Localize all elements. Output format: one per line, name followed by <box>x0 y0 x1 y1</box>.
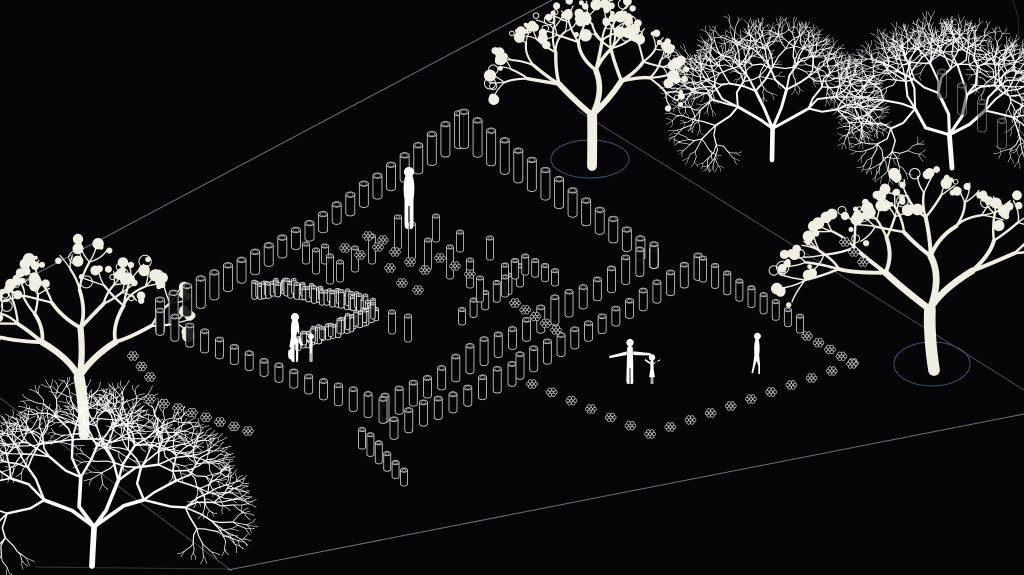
blossom <box>553 2 560 9</box>
blossom <box>574 32 579 37</box>
blossom <box>498 66 503 71</box>
bare-tree-branches <box>44 477 144 527</box>
fruit-tree-branches <box>559 70 621 115</box>
bare-tree-branches <box>772 128 773 160</box>
blossom <box>492 47 499 54</box>
blossom <box>948 177 953 182</box>
fruit-tree-branches <box>42 328 115 378</box>
site-axonometric-illustration <box>0 0 1024 575</box>
blossom <box>528 21 537 30</box>
blossom <box>496 60 501 65</box>
blossom <box>39 262 45 268</box>
blossom <box>786 302 791 307</box>
blossom <box>575 16 581 22</box>
bare-tree-branches <box>915 93 985 135</box>
blossom <box>566 0 573 5</box>
bare-tree-branches <box>738 90 809 129</box>
post-row-hook-row <box>359 427 408 486</box>
boundary-line <box>228 414 1024 570</box>
blossom <box>105 266 112 273</box>
blossom <box>1005 202 1014 211</box>
scatter-posts <box>303 214 509 342</box>
blossom <box>579 29 591 41</box>
blossom <box>651 31 655 35</box>
blossom <box>106 248 112 254</box>
blossom <box>579 0 584 5</box>
bare-tree <box>827 11 1024 185</box>
blossom <box>779 287 786 294</box>
blossom <box>910 169 920 179</box>
blossom <box>964 183 971 190</box>
person-arms-out-child <box>645 354 660 384</box>
blossom <box>655 31 659 35</box>
blossom <box>892 190 898 196</box>
blossom <box>664 43 675 54</box>
blossom <box>90 266 100 276</box>
blossom <box>118 257 129 268</box>
blossom <box>807 268 817 278</box>
blossom <box>72 256 83 267</box>
blossom <box>899 196 905 202</box>
blossom <box>923 170 932 179</box>
dense-post-band <box>252 278 379 350</box>
planting-row <box>145 395 254 436</box>
fruit-tree-branches <box>930 310 934 371</box>
blossom <box>879 200 890 211</box>
fruit-tree <box>484 0 689 166</box>
blossom <box>1015 202 1022 209</box>
blossom <box>42 279 50 287</box>
person-walking <box>751 333 760 374</box>
blossom <box>1004 214 1010 220</box>
blossom <box>73 234 83 244</box>
blossom <box>912 204 924 216</box>
blossom <box>849 227 854 232</box>
blossom <box>953 180 958 185</box>
blossom <box>524 29 529 34</box>
boundary-line <box>35 567 230 569</box>
blossom <box>805 240 810 245</box>
planting-scatter <box>340 232 476 295</box>
person-arms-out <box>609 339 650 384</box>
blossom <box>899 182 905 188</box>
blossom <box>807 264 812 269</box>
blossom <box>562 10 572 20</box>
blossom <box>484 70 496 82</box>
fruit-tree-branches <box>885 256 972 309</box>
blossom <box>957 189 961 193</box>
blossom <box>514 32 525 43</box>
bare-tree-branches <box>0 377 258 575</box>
blossom <box>1012 190 1022 200</box>
blossom <box>623 0 632 6</box>
post-row-right-ne-edge <box>700 256 804 333</box>
bare-tree-branches <box>949 135 952 168</box>
blossom <box>5 286 11 292</box>
blossom <box>80 276 92 288</box>
blossom <box>126 275 135 284</box>
blossom <box>608 0 614 1</box>
blossom <box>55 258 62 265</box>
blossom <box>73 243 84 254</box>
blossom <box>603 17 610 24</box>
bare-tree <box>0 377 258 575</box>
blossom <box>608 2 615 9</box>
blossom <box>31 261 40 270</box>
blossom <box>827 212 832 217</box>
blossom <box>611 11 615 15</box>
blossom <box>889 202 893 206</box>
blossom <box>880 184 889 193</box>
bare-tree <box>659 15 889 173</box>
bare-tree-branches <box>92 527 94 566</box>
blossom <box>841 212 849 220</box>
blossom <box>614 26 626 38</box>
blossom <box>533 13 539 19</box>
blossom <box>12 278 20 286</box>
blossom <box>629 5 635 11</box>
blossom <box>19 278 25 284</box>
blossom <box>128 262 134 268</box>
blossom <box>863 240 869 246</box>
blossom <box>99 245 104 250</box>
blossom <box>20 259 31 270</box>
blossom <box>851 214 863 226</box>
blossom <box>510 31 515 36</box>
blossom <box>542 41 551 50</box>
blossom <box>584 19 590 25</box>
planting-row <box>128 352 156 382</box>
blossom <box>138 298 144 304</box>
blossom <box>627 31 635 39</box>
blossom <box>888 168 900 180</box>
blossom <box>609 15 616 22</box>
bare-tree-branches <box>694 45 857 145</box>
planting-row <box>527 360 858 439</box>
blossom <box>590 0 601 10</box>
blossom <box>13 290 22 299</box>
blossom <box>950 190 956 196</box>
blossom <box>985 196 994 205</box>
scene-svg <box>0 0 1024 575</box>
blossom <box>582 12 590 20</box>
blossom <box>490 83 497 90</box>
blossom <box>155 278 163 286</box>
blossom <box>34 256 38 260</box>
blossom <box>524 23 528 27</box>
blossom <box>634 19 642 27</box>
